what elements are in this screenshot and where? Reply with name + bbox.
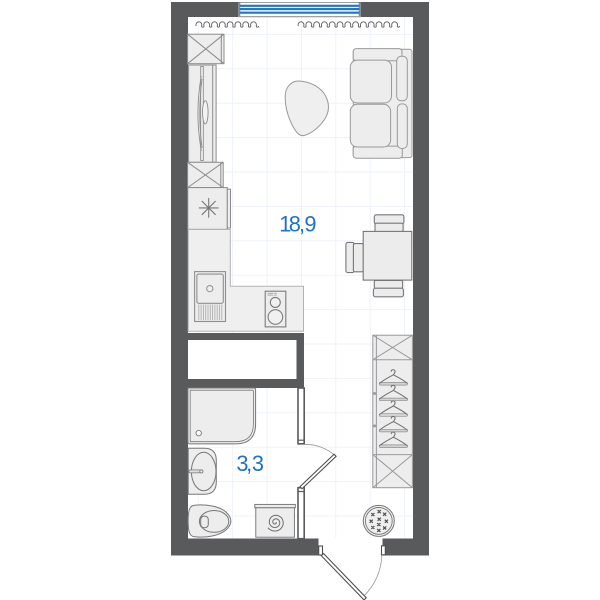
svg-text:3,3: 3,3: [236, 451, 264, 476]
svg-text:18,9: 18,9: [279, 211, 316, 236]
